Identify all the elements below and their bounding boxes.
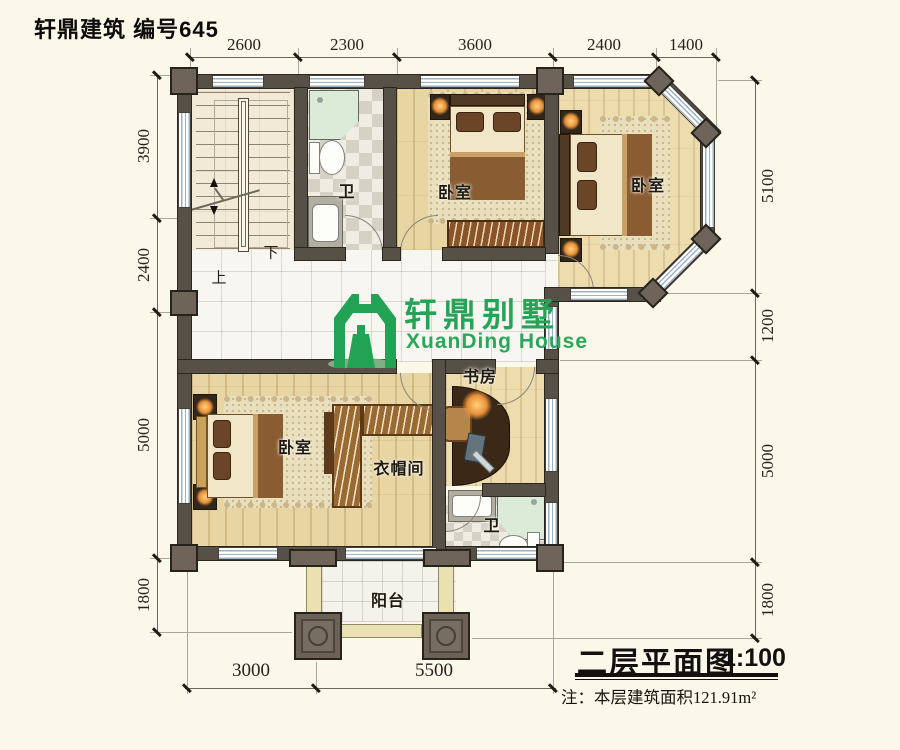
- pillow: [493, 112, 521, 132]
- balcony-railing: [306, 560, 322, 616]
- extension-line: [298, 48, 299, 75]
- pilaster: [170, 544, 198, 572]
- extension-line: [150, 632, 292, 633]
- pillow: [456, 112, 484, 132]
- bed-headboard: [559, 134, 570, 236]
- extension-line: [560, 360, 762, 361]
- wardrobe: [447, 220, 545, 248]
- shower-drain-icon: [317, 97, 323, 103]
- balcony-beam-anchor: [423, 549, 471, 567]
- dim-bottom-1: 5500: [415, 660, 453, 682]
- pillow: [213, 420, 231, 448]
- pilaster: [170, 290, 198, 316]
- dim-left-3: 1800: [134, 578, 154, 612]
- wall: [433, 360, 445, 560]
- room-label-study: 书房: [463, 363, 497, 387]
- plan-scale: 1:100: [722, 644, 786, 673]
- pilaster: [536, 544, 564, 572]
- wall: [443, 248, 545, 260]
- balcony-railing: [438, 560, 454, 616]
- nightstand: [430, 94, 450, 120]
- dim-bottom-0: 3000: [232, 660, 270, 682]
- cloakroom-side-panel: [324, 412, 332, 474]
- wall: [383, 248, 400, 260]
- bed-headboard: [450, 94, 525, 106]
- dimension-line-left: [157, 75, 158, 632]
- pilaster: [536, 67, 564, 95]
- dim-right-1: 1200: [758, 309, 778, 343]
- wall: [295, 248, 345, 260]
- extension-line: [397, 48, 398, 75]
- dim-top-3: 2400: [587, 35, 621, 55]
- wall: [537, 360, 558, 373]
- room-label-balcony: 阳台: [371, 587, 405, 611]
- stair-down-label: 下: [263, 242, 278, 263]
- extension-line: [662, 293, 762, 294]
- room-label-bedroom-lower: 卧室: [278, 434, 312, 458]
- dimension-line-bottom: [185, 688, 556, 689]
- desk-lamp-icon: [462, 390, 492, 420]
- stair-landing-outline: [214, 100, 288, 248]
- shower-drain-icon: [531, 499, 537, 505]
- dim-left-2: 5000: [134, 418, 154, 452]
- hall-floor-doorway: [545, 253, 558, 291]
- dim-top-1: 2300: [330, 35, 364, 55]
- bay-window: [702, 138, 715, 228]
- window: [545, 398, 558, 472]
- logo-icon: [326, 284, 396, 373]
- stair-rail: [238, 98, 249, 252]
- title-rule-thin: [575, 679, 778, 680]
- balcony-column: [422, 612, 470, 660]
- stair-arrow-up-icon: [210, 178, 218, 187]
- wall: [384, 88, 396, 256]
- window: [218, 547, 278, 560]
- nightstand: [560, 110, 582, 134]
- room-label-cloakroom: 衣帽间: [373, 455, 424, 479]
- logo-name-cn: 轩鼎别墅: [404, 288, 560, 336]
- dim-right-2: 5000: [758, 444, 778, 478]
- dimension-line-top: [188, 57, 718, 58]
- window: [178, 408, 191, 504]
- dim-top-4: 1400: [669, 35, 703, 55]
- window: [420, 75, 520, 88]
- cloakroom-wardrobe: [332, 404, 362, 508]
- wall: [295, 88, 307, 256]
- pillow: [213, 452, 231, 480]
- window: [570, 288, 628, 301]
- room-label-bath-top: 卫: [338, 178, 355, 202]
- extension-line: [187, 562, 188, 694]
- stair-arrow-down-icon: [210, 206, 218, 215]
- dim-right-0: 5100: [758, 169, 778, 203]
- balcony-column: [294, 612, 342, 660]
- balcony-beam-anchor: [289, 549, 337, 567]
- window: [309, 75, 365, 88]
- window: [545, 502, 558, 546]
- pillow: [577, 142, 597, 172]
- window: [212, 75, 264, 88]
- pillow: [577, 180, 597, 210]
- room-label-bedroom-right: 卧室: [631, 172, 665, 196]
- dim-left-0: 3900: [134, 129, 154, 163]
- dim-top-2: 3600: [458, 35, 492, 55]
- title-rule-thick: [575, 673, 778, 677]
- extension-line: [560, 562, 762, 563]
- floorplan-canvas: 轩鼎建筑 编号645 下 上: [0, 0, 900, 750]
- dim-top-0: 2600: [227, 35, 261, 55]
- stair-up-label: 上: [211, 267, 226, 288]
- drawing-title: 轩鼎建筑 编号645: [34, 12, 219, 44]
- window: [476, 547, 540, 560]
- room-label-bath-lower: 卫: [483, 512, 500, 536]
- dim-left-1: 2400: [134, 248, 154, 282]
- pilaster: [170, 67, 198, 95]
- logo-name-en: XuanDing House: [406, 330, 588, 354]
- bed-headboard: [196, 416, 207, 488]
- plan-note: 注：本层建筑面积121.91m²: [561, 684, 756, 708]
- window: [178, 112, 191, 208]
- room-label-bedroom-top: 卧室: [438, 179, 472, 203]
- window: [573, 75, 650, 88]
- wall: [483, 484, 545, 496]
- toilet: [319, 140, 345, 175]
- nightstand: [527, 94, 547, 120]
- wall: [545, 88, 558, 253]
- dim-right-3: 1800: [758, 583, 778, 617]
- sink: [312, 204, 339, 242]
- extension-line: [150, 218, 178, 219]
- extension-line: [553, 562, 554, 694]
